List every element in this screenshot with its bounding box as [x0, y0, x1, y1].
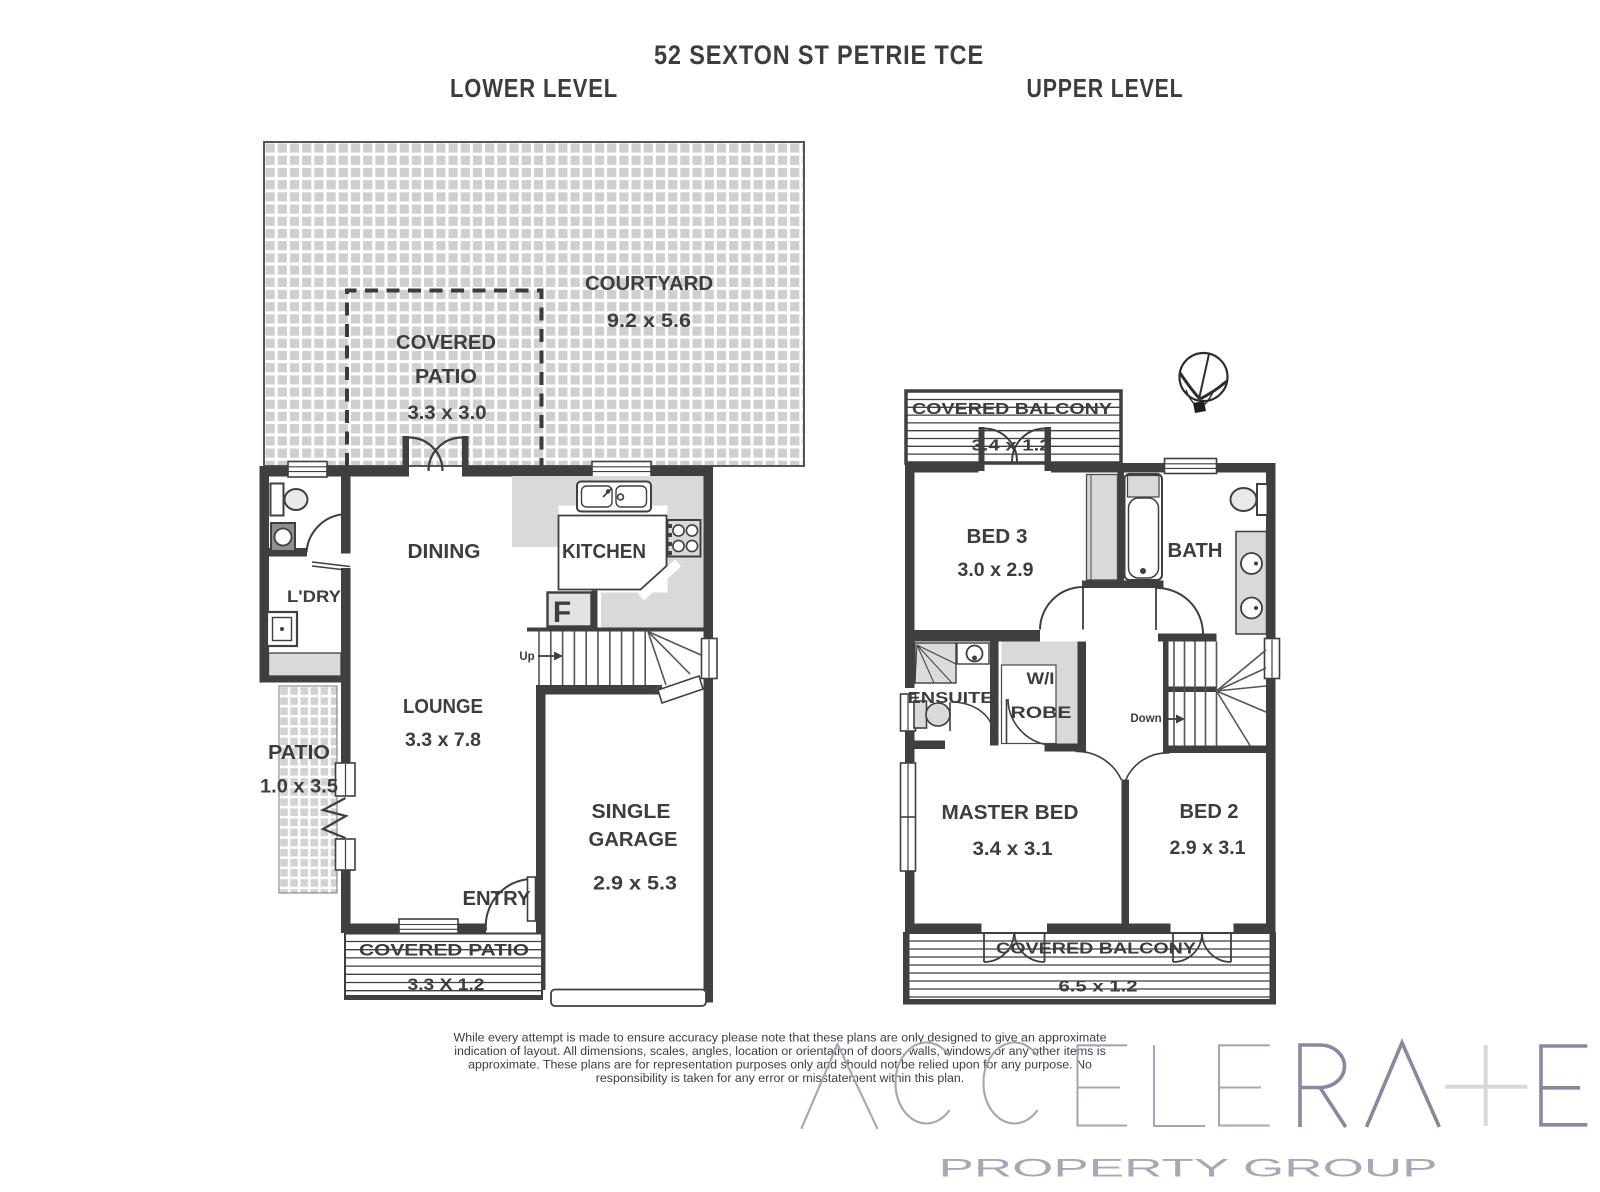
svg-text:ENSUITE: ENSUITE — [908, 690, 994, 707]
svg-text:Up: Up — [519, 651, 534, 663]
svg-text:2.9 x 3.1: 2.9 x 3.1 — [1170, 838, 1246, 859]
svg-text:PATIO: PATIO — [415, 366, 477, 388]
svg-text:3.3 x 3.0: 3.3 x 3.0 — [408, 403, 487, 424]
svg-text:DINING: DINING — [408, 541, 481, 563]
svg-text:COVERED: COVERED — [396, 332, 496, 354]
svg-text:3.3 x 7.8: 3.3 x 7.8 — [405, 730, 481, 751]
svg-text:approximate. These plans are f: approximate. These plans are for represe… — [468, 1058, 1092, 1072]
svg-text:COVERED BALCONY: COVERED BALCONY — [996, 941, 1196, 958]
svg-text:PROPERTY GROUP: PROPERTY GROUP — [939, 1155, 1438, 1183]
svg-text:UPPER LEVEL: UPPER LEVEL — [1027, 73, 1184, 103]
svg-text:W/I: W/I — [1027, 669, 1055, 688]
svg-text:F: F — [553, 596, 571, 629]
svg-text:LOUNGE: LOUNGE — [403, 696, 483, 718]
svg-text:BED 2: BED 2 — [1180, 801, 1239, 823]
svg-text:COVERED BALCONY: COVERED BALCONY — [912, 401, 1112, 418]
svg-text:9.2 x 5.6: 9.2 x 5.6 — [607, 311, 691, 332]
svg-text:COURTYARD: COURTYARD — [585, 273, 713, 295]
svg-text:3.0 x 2.9: 3.0 x 2.9 — [958, 560, 1034, 581]
svg-text:ROBE: ROBE — [1011, 703, 1072, 722]
svg-text:MASTER BED: MASTER BED — [942, 802, 1079, 824]
svg-text:6.5 x 1.2: 6.5 x 1.2 — [1059, 979, 1138, 996]
svg-text:BATH: BATH — [1168, 540, 1223, 562]
svg-text:KITCHEN: KITCHEN — [562, 541, 646, 563]
svg-text:LOWER LEVEL: LOWER LEVEL — [450, 73, 618, 103]
svg-text:COVERED PATIO: COVERED PATIO — [359, 941, 529, 960]
svg-text:52 SEXTON ST PETRIE TCE: 52 SEXTON ST PETRIE TCE — [654, 40, 984, 70]
svg-text:responsibility is taken for an: responsibility is taken for any error or… — [596, 1071, 964, 1085]
svg-text:2.9 x 5.3: 2.9 x 5.3 — [593, 874, 677, 895]
svg-text:GARAGE: GARAGE — [589, 829, 678, 851]
svg-text:Down: Down — [1130, 713, 1161, 725]
svg-text:3.3 X 1.2: 3.3 X 1.2 — [408, 975, 485, 994]
svg-text:indication of layout. All dime: indication of layout. All dimensions, sc… — [454, 1044, 1106, 1058]
svg-text:ENTRY: ENTRY — [463, 888, 532, 910]
svg-text:SINGLE: SINGLE — [592, 801, 671, 823]
svg-text:3.4 x 3.1: 3.4 x 3.1 — [973, 839, 1053, 860]
svg-text:L'DRY: L'DRY — [287, 587, 342, 606]
svg-text:BED 3: BED 3 — [967, 526, 1028, 548]
svg-text:PATIO: PATIO — [268, 742, 330, 764]
svg-text:1.0 x 3.5: 1.0 x 3.5 — [260, 777, 338, 798]
